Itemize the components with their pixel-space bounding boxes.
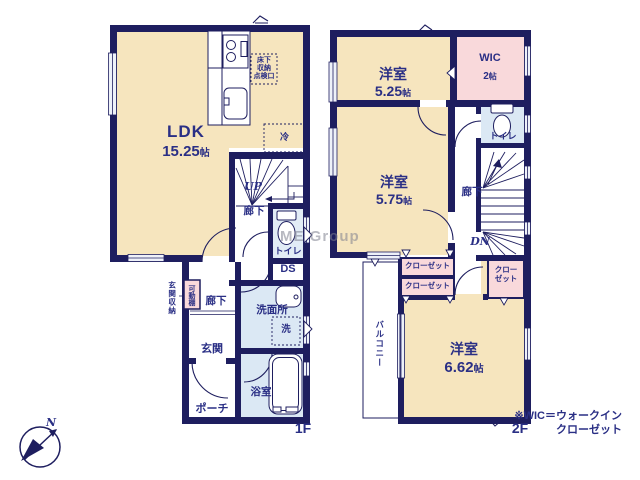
closet1-label: クローゼット — [401, 262, 454, 271]
toilet-tank-1f — [277, 211, 296, 220]
fridge-label: 冷 — [264, 132, 305, 142]
floor1-label: 1F — [288, 420, 318, 436]
underfloor-hatch-label: 床下 収納 点検口 — [251, 57, 277, 81]
entrance-label: 玄関 — [190, 343, 234, 356]
floorplan-canvas: LDK 15.25帖 床下 収納 点検口 冷 UP 廊下 トイレ DS 洗面所 … — [0, 0, 640, 480]
stairs-down-label: DN — [466, 236, 494, 249]
room3-area: 6.62帖 — [429, 359, 499, 377]
stairs-up-label: UP — [240, 181, 266, 194]
room2-label: 洋室 — [364, 174, 424, 190]
duct-space-label: DS — [273, 263, 303, 276]
compass-north-label: N — [44, 417, 58, 430]
porch-label: ポーチ — [188, 403, 236, 416]
ldk-area: 15.25帖 — [136, 143, 236, 161]
room3-label: 洋室 — [434, 341, 494, 357]
toilet-label-1f: トイレ — [272, 246, 304, 256]
washer-label: 洗 — [272, 325, 300, 336]
hall-upper-label-1f: 廊下 — [238, 205, 270, 217]
wic-area: 2帖 — [460, 66, 520, 84]
stove — [223, 35, 248, 68]
washroom-label: 洗面所 — [238, 304, 306, 316]
room2-area: 5.75帖 — [359, 191, 429, 209]
toilet-label-2f: トイレ — [486, 131, 520, 141]
room1-area: 5.25帖 — [358, 83, 428, 101]
watermark: ME Group — [280, 228, 360, 245]
hall-lower-label-1f: 廊下 — [196, 295, 236, 307]
movable-shelf-label: 可動棚 — [187, 282, 195, 308]
closet3-label: クロー ゼット — [488, 266, 524, 283]
closet2-label: クローゼット — [401, 282, 454, 291]
hall-gap-fill-2f — [455, 258, 481, 294]
room1-label: 洋室 — [363, 66, 423, 82]
compass-icon — [20, 427, 60, 467]
balcony-label: バルコニー — [374, 316, 384, 372]
wic-label: WIC — [460, 52, 520, 65]
entrance-storage-label: 玄関収納 — [167, 277, 176, 319]
wic-note-line2: クローゼット — [450, 421, 622, 437]
ldk-label: LDK — [136, 122, 236, 142]
toilet-tank-2f — [491, 104, 513, 113]
hall-label-2f: 廊下 — [456, 186, 488, 198]
bathtub — [269, 354, 302, 414]
bath-label: 浴室 — [236, 386, 286, 398]
